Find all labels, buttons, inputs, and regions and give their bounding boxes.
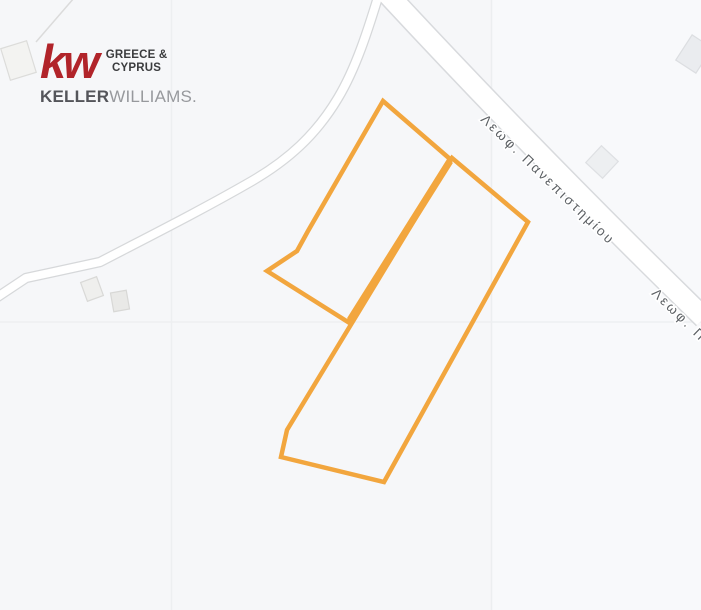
kw-logo: kw GREECE & CYPRUS KELLERWILLIAMS. — [40, 40, 197, 105]
building-footprint — [110, 290, 129, 311]
map-viewport[interactable]: Λεωφ. Πανεπιστημίου Λεωφ. Πανεπιστημίου … — [0, 0, 701, 610]
kw-wordmark-williams: WILLIAMS. — [109, 87, 197, 106]
kw-region-line2: CYPRUS — [106, 62, 168, 75]
kw-wordmark-keller: KELLER — [40, 87, 109, 106]
kw-region-text: GREECE & CYPRUS — [106, 49, 168, 74]
kw-logo-mark: kw — [40, 40, 97, 81]
kw-region-line1: GREECE & — [106, 49, 168, 62]
kw-wordmark: KELLERWILLIAMS. — [40, 88, 197, 105]
